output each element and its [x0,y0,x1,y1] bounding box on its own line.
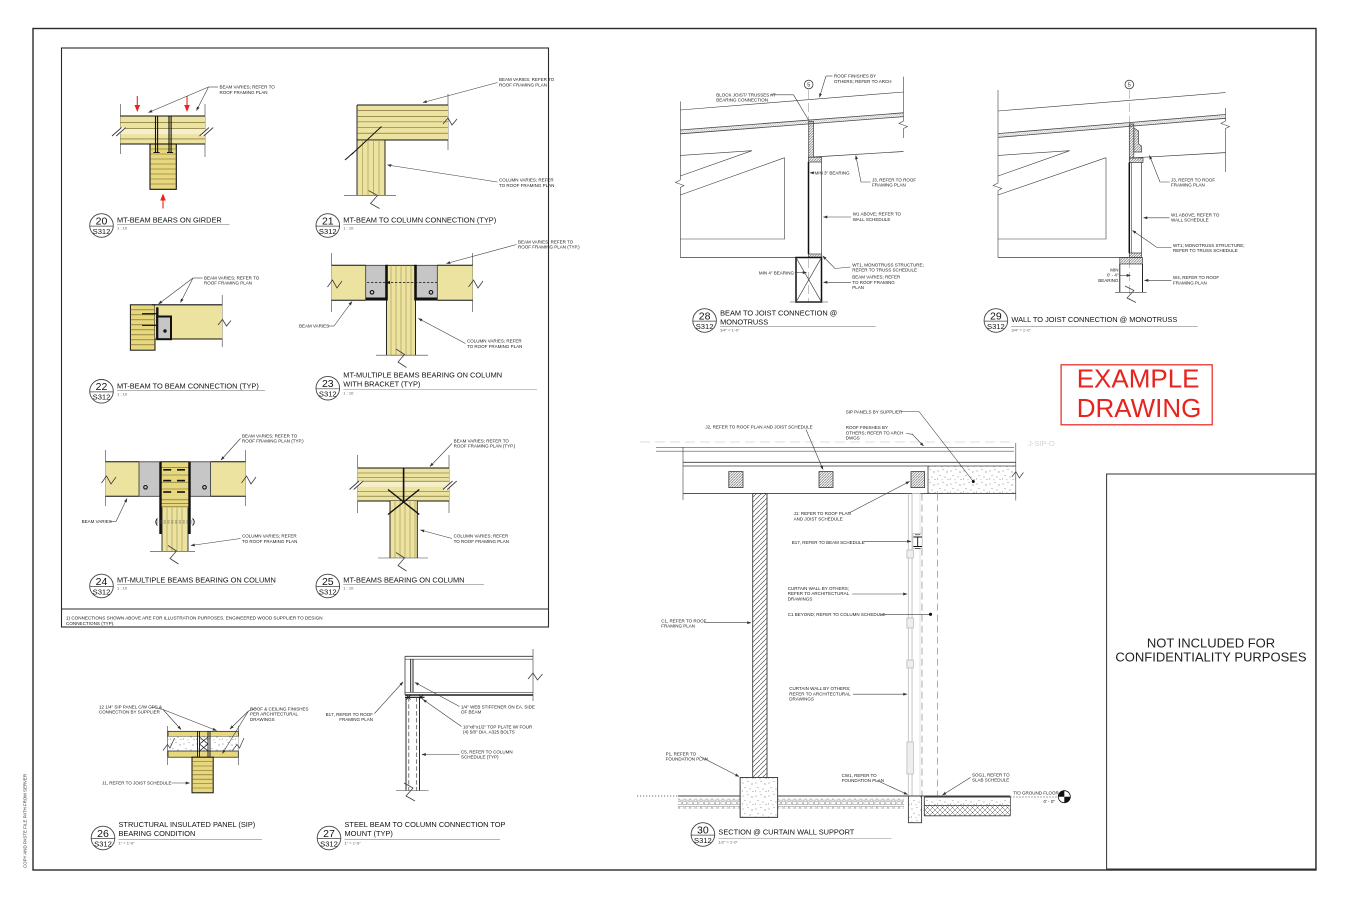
svg-text:CURTAIN WALL BY OTHERS;: CURTAIN WALL BY OTHERS; [789,686,850,691]
svg-text:30: 30 [697,824,709,836]
svg-text:WT1, MONOTRUSS STRUCTURE;: WT1, MONOTRUSS STRUCTURE; [852,262,924,267]
svg-text:SLAB SCHEDULE: SLAB SCHEDULE [972,778,1009,783]
svg-text:B17, REFER TO ROOF: B17, REFER TO ROOF [326,712,374,717]
svg-text:BEAM VARIES: BEAM VARIES [82,519,112,524]
svg-text:MT-BEAMS BEARING ON COLUMN: MT-BEAMS BEARING ON COLUMN [343,576,464,585]
svg-text:ROOF FRAMING PLAN: ROOF FRAMING PLAN [220,90,268,95]
svg-text:REFER TO ARCHITECTURAL: REFER TO ARCHITECTURAL [789,691,851,696]
svg-text:T/O GROUND FLOOR: T/O GROUND FLOOR [1013,790,1059,795]
svg-text:SIP PANELS BY SUPPLIER: SIP PANELS BY SUPPLIER [846,409,903,414]
svg-text:MIN: MIN [1110,267,1118,272]
svg-text:J3, REFER TO ROOF: J3, REFER TO ROOF [1171,177,1215,182]
svg-text:24: 24 [96,576,108,588]
svg-text:J3, REFER TO ROOF: J3, REFER TO ROOF [872,177,916,182]
svg-text:NOT INCLUDED FOR: NOT INCLUDED FOR [1147,636,1275,651]
svg-text:MT-MULTIPLE BEAMS BEARING ON C: MT-MULTIPLE BEAMS BEARING ON COLUMN [117,576,276,585]
svg-text:ROOF FINISHES BY: ROOF FINISHES BY [846,425,888,430]
svg-text:WALL TO JOIST CONNECTION @ MON: WALL TO JOIST CONNECTION @ MONOTRUSS [1011,315,1177,324]
svg-text:BEAM VARIES; REFER: BEAM VARIES; REFER [852,275,901,280]
svg-text:S312: S312 [319,227,337,236]
svg-text:0' - 4": 0' - 4" [1107,273,1119,278]
svg-text:0' - 0": 0' - 0" [1044,799,1056,804]
svg-text:1 : 10: 1 : 10 [343,586,354,591]
svg-text:AND JOIST SCHEDULE: AND JOIST SCHEDULE [794,517,843,522]
svg-text:DRAWINGS: DRAWINGS [250,717,275,722]
svg-text:WITH BRACKET (TYP): WITH BRACKET (TYP) [343,380,420,389]
svg-text:CONFIDENTIALITY PURPOSES: CONFIDENTIALITY PURPOSES [1115,650,1307,665]
svg-text:S312: S312 [93,587,111,596]
svg-text:BEAM VARIES; REFER TO: BEAM VARIES; REFER TO [242,433,298,438]
svg-text:REFER TO TRUSS SCHEDULE: REFER TO TRUSS SCHEDULE [1173,248,1238,253]
svg-text:FRAMING PLAN: FRAMING PLAN [661,624,695,629]
svg-text:S312: S312 [696,322,714,331]
svg-text:OTHERS; REFER TO ARCH: OTHERS; REFER TO ARCH [846,430,904,435]
svg-text:(4) 5/8" DIA. A325 BOLTS: (4) 5/8" DIA. A325 BOLTS [463,730,515,735]
svg-text:27: 27 [323,828,335,840]
svg-text:DRAWINGS: DRAWINGS [789,697,814,702]
svg-text:W1 ABOVE; REFER TO: W1 ABOVE; REFER TO [1171,212,1220,217]
svg-text:1/2" = 1'-0": 1/2" = 1'-0" [718,840,738,845]
svg-text:S312: S312 [694,836,712,845]
svg-text:MT-BEAM TO COLUMN CONNECTION (: MT-BEAM TO COLUMN CONNECTION (TYP) [343,216,496,225]
svg-text:BEAM TO JOIST CONNECTION @: BEAM TO JOIST CONNECTION @ [720,308,837,317]
svg-text:SOG1, REFER TO: SOG1, REFER TO [972,772,1010,777]
svg-text:TO ROOF FRAMING PLAN: TO ROOF FRAMING PLAN [242,539,297,544]
svg-text:FRAMING PLAN: FRAMING PLAN [872,183,906,188]
svg-text:S312: S312 [93,227,111,236]
svg-text:WALL SCHEDULE: WALL SCHEDULE [1171,218,1209,223]
svg-text:TO ROOF FRAMING PLAN: TO ROOF FRAMING PLAN [454,539,509,544]
svg-text:J2, REFER TO ROOF PLAN AND JOI: J2, REFER TO ROOF PLAN AND JOIST SCHEDUL… [705,424,812,429]
svg-text:J1: REFER TO ROOF PLAN: J1: REFER TO ROOF PLAN [794,511,851,516]
svg-text:ROOF FRAMING PLAN: ROOF FRAMING PLAN [204,281,252,286]
svg-text:1 : 10: 1 : 10 [117,392,128,397]
svg-text:P1, REFER TO: P1, REFER TO [666,751,697,756]
svg-text:DWGS: DWGS [846,436,860,441]
svg-text:FRAMING PLAN: FRAMING PLAN [1171,183,1205,188]
svg-text:COLUMN VARIES; REFER: COLUMN VARIES; REFER [467,339,522,344]
svg-text:1/4" WEB STIFFENER ON EA. SIDE: 1/4" WEB STIFFENER ON EA. SIDE [461,704,535,709]
svg-text:J1, REFER TO JOIST SCHEDULE: J1, REFER TO JOIST SCHEDULE [102,781,172,786]
svg-text:BLOCK JOIST/ TRUSSES AT: BLOCK JOIST/ TRUSSES AT [716,92,776,97]
svg-text:3/4" = 1'-0": 3/4" = 1'-0" [720,328,740,333]
svg-text:REFER TO ARCHITECTURAL: REFER TO ARCHITECTURAL [788,591,850,596]
svg-text:CONNECTION BY SUPPLIER: CONNECTION BY SUPPLIER [99,710,161,715]
svg-text:B17, REFER TO BEAM SCHEDULE: B17, REFER TO BEAM SCHEDULE [792,540,865,545]
svg-text:1 : 10: 1 : 10 [117,226,128,231]
svg-text:BEAM VARIES; REFER TO: BEAM VARIES; REFER TO [518,239,574,244]
svg-text:ROOF FRAMING PLAN (TYP.): ROOF FRAMING PLAN (TYP.) [518,245,580,250]
svg-text:S312: S312 [94,839,112,848]
svg-text:MIN 3" BEARING: MIN 3" BEARING [815,171,851,176]
svg-text:5: 5 [807,82,810,88]
svg-text:BEAM VARIES; REFER TO: BEAM VARIES; REFER TO [454,438,510,443]
svg-text:C5, REFER TO COLUMN: C5, REFER TO COLUMN [461,749,513,754]
svg-text:ROOF FRAMING PLAN: ROOF FRAMING PLAN [499,82,547,87]
svg-text:FRAMING PLAN: FRAMING PLAN [339,717,373,722]
svg-text:S312: S312 [987,322,1005,331]
svg-text:EXAMPLE: EXAMPLE [1077,364,1200,394]
svg-text:BEARING CONNECTION: BEARING CONNECTION [716,98,768,103]
svg-text:ROOF FRAMING PLAN (TYP.): ROOF FRAMING PLAN (TYP.) [242,439,304,444]
svg-text:BEARING CONDITION: BEARING CONDITION [119,829,196,838]
svg-text:OF BEAM: OF BEAM [461,710,482,715]
svg-text:3/4" = 1'-0": 3/4" = 1'-0" [1011,328,1031,333]
svg-text:MT-BEAM BEARS ON GIRDER: MT-BEAM BEARS ON GIRDER [117,216,222,225]
svg-text:BEAM VARIES; REFER TO: BEAM VARIES; REFER TO [220,85,276,90]
svg-text:26: 26 [97,828,109,840]
svg-text:SCHEDULE (TYP): SCHEDULE (TYP) [461,755,499,760]
svg-text:SECTION @ CURTAIN WALL SUPPORT: SECTION @ CURTAIN WALL SUPPORT [718,827,854,836]
svg-text:TO ROOF FRAMING PLAN: TO ROOF FRAMING PLAN [499,183,554,188]
svg-text:MT-BEAM TO BEAM CONNECTION (TY: MT-BEAM TO BEAM CONNECTION (TYP) [117,382,259,391]
svg-text:WT1; MONOTRUSS STRUCTURE;: WT1; MONOTRUSS STRUCTURE; [1173,243,1245,248]
svg-text:21: 21 [322,215,334,227]
svg-text:10"x8"x1/2" TOP PLATE W/ FOUR: 10"x8"x1/2" TOP PLATE W/ FOUR [463,724,533,729]
svg-text:FRAMING PLAN: FRAMING PLAN [1173,281,1207,286]
svg-text:BEAM VARIES; REFER TO: BEAM VARIES; REFER TO [204,275,260,280]
svg-text:20: 20 [96,215,108,227]
svg-text:DRAWING: DRAWING [1077,393,1202,423]
svg-text:MIN 4" BEARING: MIN 4" BEARING [759,270,795,275]
svg-text:STEEL BEAM TO COLUMN CONNECTIO: STEEL BEAM TO COLUMN CONNECTION TOP [345,820,506,829]
svg-text:CW1, REFER TO: CW1, REFER TO [842,773,878,778]
svg-text:TO ROOF FRAMING: TO ROOF FRAMING [852,280,895,285]
svg-text:23: 23 [322,378,334,390]
svg-text:COPY AND PASTE FILE PATH FROM: COPY AND PASTE FILE PATH FROM SERVER [23,774,28,868]
svg-text:S312: S312 [319,587,337,596]
svg-text:PER ARCHITECTURAL: PER ARCHITECTURAL [250,712,299,717]
svg-text:COLUMN VARIES; REFER: COLUMN VARIES; REFER [499,178,554,183]
svg-text:CONNECTIONS (TYP).: CONNECTIONS (TYP). [66,621,115,626]
svg-text:REFER TO TRUSS SCHEDULE: REFER TO TRUSS SCHEDULE [852,268,917,273]
svg-text:W1 ABOVE; REFER TO: W1 ABOVE; REFER TO [853,212,902,217]
svg-text:12 1/4" SIP PANEL C/W GPS &: 12 1/4" SIP PANEL C/W GPS & [99,704,162,709]
svg-text:C1 BEYOND; REFER TO COLUMN SCH: C1 BEYOND; REFER TO COLUMN SCHEDULE [788,612,886,617]
svg-text:22: 22 [96,381,108,393]
svg-text:1 : 10: 1 : 10 [117,586,128,591]
svg-text:28: 28 [699,310,711,322]
svg-text:25: 25 [322,576,334,588]
svg-text:1 : 10: 1 : 10 [343,391,354,396]
svg-text:CURTAIN WALL BY OTHERS;: CURTAIN WALL BY OTHERS; [788,586,849,591]
svg-text:ROOF FRAMING PLAN (TYP.): ROOF FRAMING PLAN (TYP.) [454,444,516,449]
svg-text:MT-MULTIPLE BEAMS BEARING ON C: MT-MULTIPLE BEAMS BEARING ON COLUMN [343,370,502,379]
svg-text:DRAWINGS: DRAWINGS [788,596,813,601]
svg-text:W4, REFER TO ROOF: W4, REFER TO ROOF [1173,275,1219,280]
svg-text:WALL SCHEDULE: WALL SCHEDULE [853,217,891,222]
svg-text:1" = 1'-0": 1" = 1'-0" [345,840,362,845]
svg-text:COLUMN VARIES; REFER: COLUMN VARIES; REFER [454,534,509,539]
svg-text:5: 5 [1128,82,1131,88]
svg-text:J-SIP-O: J-SIP-O [1028,439,1055,448]
svg-text:S312: S312 [319,390,337,399]
svg-text:TO ROOF FRAMING PLAN: TO ROOF FRAMING PLAN [467,344,522,349]
svg-text:OTHERS; REFER TO ARCH: OTHERS; REFER TO ARCH [834,79,892,84]
svg-text:MONOTRUSS: MONOTRUSS [720,318,768,327]
svg-text:S312: S312 [93,393,111,402]
svg-text:STRUCTURAL INSULATED PANEL (SI: STRUCTURAL INSULATED PANEL (SIP) [119,820,256,829]
svg-text:C1, REFER TO ROOF: C1, REFER TO ROOF [661,618,706,623]
svg-text:MOUNT (TYP): MOUNT (TYP) [345,829,393,838]
svg-text:1 : 10: 1 : 10 [343,226,354,231]
svg-text:S312: S312 [320,839,338,848]
svg-text:BEAM VARIES; REFER TO: BEAM VARIES; REFER TO [499,77,555,82]
svg-text:PLAN: PLAN [852,285,864,290]
svg-text:ROOF & CEILING FINISHES: ROOF & CEILING FINISHES [250,706,309,711]
svg-text:1" = 1'-0": 1" = 1'-0" [119,840,136,845]
svg-text:BEAM VARIES: BEAM VARIES [299,324,329,329]
svg-text:1) CONNECTIONS SHOWN ABOVE ARE: 1) CONNECTIONS SHOWN ABOVE ARE FOR ILLUS… [66,616,323,621]
svg-text:29: 29 [990,310,1002,322]
svg-text:BEARING: BEARING [1098,278,1119,283]
svg-text:ROOF FINISHES BY: ROOF FINISHES BY [834,74,876,79]
svg-text:COLUMN VARIES; REFER: COLUMN VARIES; REFER [242,534,297,539]
